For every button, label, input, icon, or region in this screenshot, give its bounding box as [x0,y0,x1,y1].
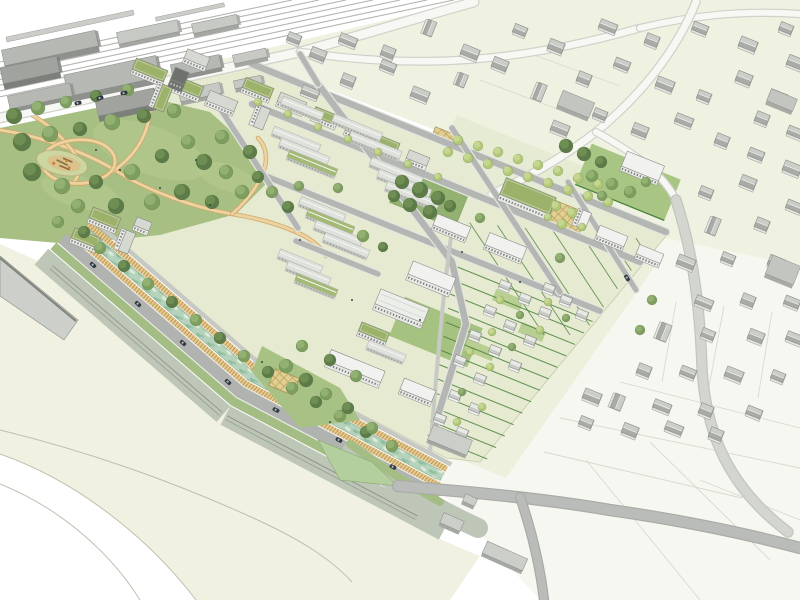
tree [443,147,453,157]
tree [60,96,72,108]
tree [647,295,657,305]
tree [586,170,598,182]
pedestrian [461,251,463,253]
tree [333,183,343,193]
tree [243,145,257,159]
tree [286,382,298,394]
tree [190,314,202,326]
tree [296,340,308,352]
tree [567,208,577,218]
tree [320,388,332,400]
tree [577,147,591,161]
tree [543,178,553,188]
tree [215,130,229,144]
tree [386,440,398,452]
pedestrian [299,239,301,241]
tree [142,278,154,290]
tree [282,201,294,213]
tree [13,133,31,151]
tree [144,194,160,210]
tree [403,198,417,212]
tree [458,388,466,396]
tree [78,226,90,238]
tree [573,173,583,183]
tree [496,296,504,304]
tree [314,123,322,131]
tree [196,154,212,170]
tree [350,370,362,382]
pedestrian [159,187,161,189]
tree [508,343,516,351]
tree [553,166,563,176]
tree [6,108,22,124]
tree [262,366,274,378]
tree [71,199,85,213]
tree [167,104,181,118]
tree [404,160,412,168]
tree [294,181,304,191]
tree [395,175,409,189]
pedestrian [209,204,211,206]
masterplan-aerial-view [0,0,800,600]
tree [488,328,496,336]
tree [73,122,87,136]
tree [155,149,169,163]
tree [544,298,552,306]
tree [635,325,645,335]
tree [284,110,292,118]
pedestrian [195,159,197,161]
tree [54,178,70,194]
tree [23,163,41,181]
tree [478,403,486,411]
tree [578,223,586,231]
tree [310,396,322,408]
tree [559,139,573,153]
tree [503,166,513,176]
tree [536,326,544,334]
tree [181,135,195,149]
tree [89,175,103,189]
tree [252,171,264,183]
pedestrian [329,421,331,423]
tree [624,186,636,198]
tree [324,354,336,366]
tree [641,177,651,187]
pedestrian [351,299,353,301]
tree [555,253,565,263]
tree [551,201,561,211]
pedestrian [119,169,121,171]
tree [595,156,607,168]
tree [342,402,354,414]
tree [434,173,442,181]
tree [52,216,64,228]
tree [378,242,388,252]
tree [344,135,352,143]
tree [118,260,130,272]
tree [357,230,369,242]
tree [94,242,106,254]
tree [108,198,124,214]
tree [493,147,503,157]
tree [31,101,45,115]
tree [137,109,151,123]
tree [124,164,140,180]
tree [444,200,456,212]
tree [513,154,523,164]
tree [563,185,573,195]
tree [104,114,120,130]
tree [463,153,473,163]
tree [235,185,249,199]
tree [42,126,58,142]
tree [606,178,618,190]
tree [483,159,493,169]
tree [557,219,567,229]
tree [473,141,483,151]
tree [453,135,463,145]
pedestrian [95,149,97,151]
tree [486,363,494,371]
tree [583,191,593,201]
pedestrian [519,281,521,283]
tree [219,165,233,179]
tree [412,182,428,198]
tree [423,205,437,219]
tree [562,314,570,322]
tree [166,296,178,308]
tree [523,172,533,182]
tree [299,373,313,387]
tree [597,191,607,201]
tree [254,98,262,106]
tree [466,348,474,356]
tree [279,359,293,373]
tree [174,184,190,200]
tree [205,195,219,209]
tree [238,350,250,362]
tree [475,213,485,223]
tree [214,332,226,344]
tree [374,148,382,156]
tree [533,160,543,170]
tree [388,190,400,202]
pedestrian [419,319,421,321]
tree [453,418,461,426]
masterplan-rendering-canvas [0,0,800,600]
tree [90,90,102,102]
tree [431,191,445,205]
tree [266,186,278,198]
tree [544,213,552,221]
tree [366,422,378,434]
pedestrian [261,361,263,363]
tree [516,311,524,319]
